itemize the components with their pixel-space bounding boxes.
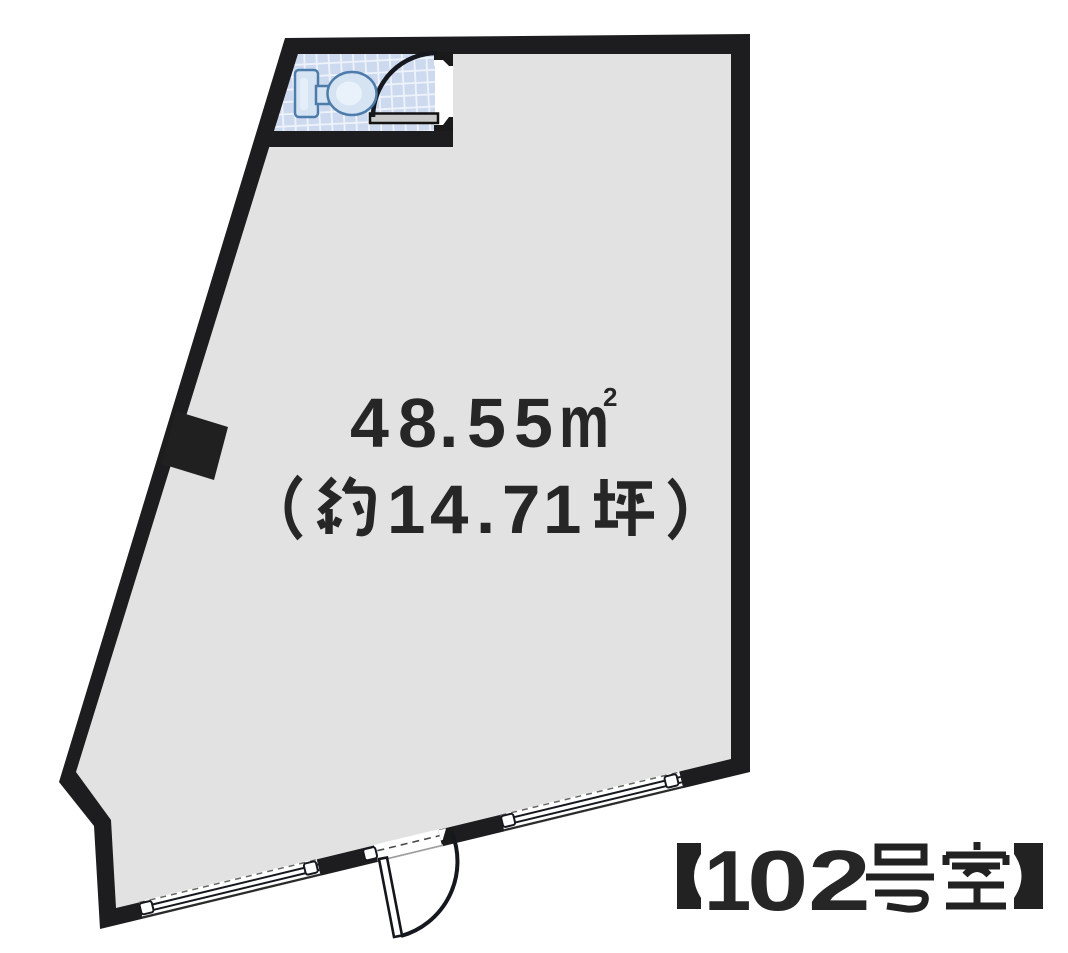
svg-text:1: 1: [704, 834, 751, 929]
svg-text:14.71: 14.71: [387, 471, 581, 548]
svg-text:2: 2: [808, 834, 871, 929]
svg-text:2: 2: [603, 382, 617, 412]
svg-text:48.55: 48.55: [350, 384, 553, 462]
svg-text:0: 0: [747, 833, 808, 928]
svg-text:m: m: [559, 381, 609, 463]
